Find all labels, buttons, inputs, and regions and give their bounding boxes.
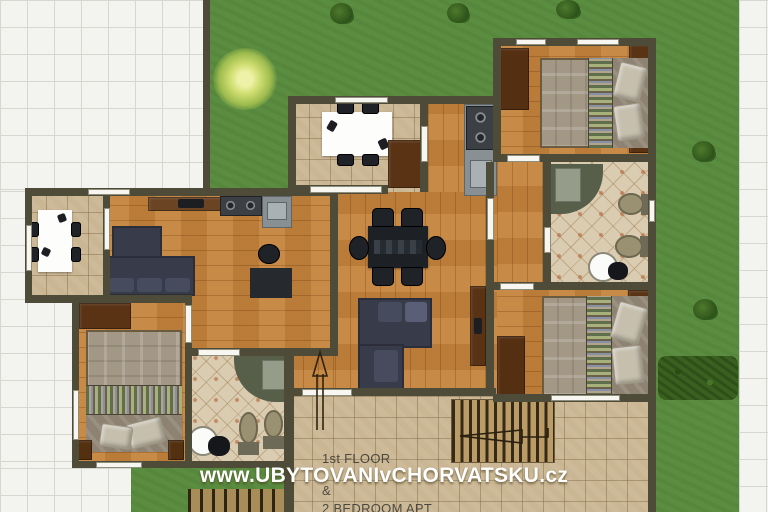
window xyxy=(577,39,619,45)
burner-icon xyxy=(224,199,237,212)
door-opening xyxy=(185,305,192,343)
bed-runner xyxy=(588,58,613,148)
wall xyxy=(543,162,551,290)
yellow-shrub xyxy=(213,48,277,110)
desk-chair xyxy=(258,244,280,264)
pillow xyxy=(613,102,646,142)
toilet xyxy=(615,235,643,258)
desk xyxy=(250,268,292,298)
sofa xyxy=(105,256,195,296)
door-opening xyxy=(421,126,428,162)
watermark: www.UBYTOVANIvCHORVATSKU.cz xyxy=(200,464,568,488)
dining-chair xyxy=(426,236,446,260)
patio-top-left xyxy=(0,0,206,191)
dining-chair xyxy=(71,247,81,262)
burner-icon xyxy=(244,199,257,212)
door-opening xyxy=(507,155,540,162)
entrance-door-opening xyxy=(302,389,352,396)
wall xyxy=(648,38,656,512)
sofa-chaise xyxy=(358,344,404,390)
patio-right-strip xyxy=(739,0,768,512)
stove xyxy=(466,106,496,150)
tv xyxy=(178,199,204,208)
window xyxy=(26,225,32,271)
sofa-cushion xyxy=(378,302,402,322)
wood-deck xyxy=(188,489,288,512)
wall xyxy=(493,38,501,162)
wall xyxy=(330,188,338,356)
window xyxy=(649,200,655,222)
floor-plan: 1st FLOOR & 2 BEDROOM APT www.UBYTOVANIv… xyxy=(0,0,768,512)
stove xyxy=(220,196,262,216)
shower-tray xyxy=(555,168,581,202)
stairs xyxy=(452,400,554,462)
terrace-chair xyxy=(362,154,379,166)
bush-icon xyxy=(692,141,715,162)
dining-chair xyxy=(349,236,369,260)
bath-stool xyxy=(608,262,628,280)
terrace-chair xyxy=(337,154,354,166)
sofa-cushion xyxy=(109,278,134,292)
wardrobe xyxy=(79,303,131,329)
window xyxy=(96,462,142,468)
bush-icon xyxy=(330,3,353,24)
bush-icon xyxy=(447,3,469,23)
sofa xyxy=(112,226,162,258)
kitchen-counter xyxy=(262,196,292,228)
toilet xyxy=(239,412,258,444)
bed xyxy=(542,296,648,396)
bed-runner xyxy=(586,296,612,396)
window xyxy=(73,390,79,440)
wall xyxy=(288,96,296,196)
toilet xyxy=(618,193,644,215)
window xyxy=(516,39,546,45)
wardrobe xyxy=(497,336,525,398)
hall-cabinet xyxy=(470,286,486,366)
table-runner xyxy=(374,240,422,254)
sofa-cushion xyxy=(137,278,162,292)
door-opening xyxy=(104,208,110,250)
pillow xyxy=(99,423,134,450)
bed xyxy=(86,330,182,452)
door-opening xyxy=(198,349,240,356)
pillow xyxy=(611,345,645,386)
floor-label-line3: 2 BEDROOM APT xyxy=(322,501,432,512)
dining-chair xyxy=(372,267,394,286)
dining-chair xyxy=(372,208,394,227)
door-opening xyxy=(544,227,551,253)
wall xyxy=(428,96,500,104)
burner-icon xyxy=(473,110,488,125)
bed-runner xyxy=(86,385,182,415)
burner-icon xyxy=(473,130,488,145)
window xyxy=(335,97,388,103)
dining-table xyxy=(38,210,72,272)
shower-tray xyxy=(262,360,286,390)
bath-stool xyxy=(208,436,230,456)
sofa-cushion xyxy=(374,350,398,382)
bidet xyxy=(264,410,283,438)
terrace-cabinet xyxy=(388,140,422,188)
window xyxy=(551,395,620,401)
bush-icon xyxy=(693,299,717,320)
dining-chair xyxy=(71,222,81,237)
door-opening xyxy=(487,198,494,240)
sofa-cushion xyxy=(405,302,427,322)
wall xyxy=(72,302,79,468)
corridor-floor xyxy=(497,162,549,290)
window xyxy=(88,189,130,195)
patio-bottom-left xyxy=(0,468,131,512)
window xyxy=(310,186,382,193)
door-opening xyxy=(500,283,534,290)
sink xyxy=(267,202,287,220)
garden-wall xyxy=(203,0,210,191)
dining-table-black xyxy=(368,226,428,268)
cabinet-handle xyxy=(474,318,482,334)
dining-chair xyxy=(401,267,423,286)
sofa-cushion xyxy=(165,278,190,292)
bed xyxy=(540,58,648,148)
sofa xyxy=(358,298,432,348)
hedge xyxy=(658,356,738,400)
dining-chair xyxy=(401,208,423,227)
wardrobe xyxy=(497,48,529,110)
bush-icon xyxy=(556,0,580,19)
bed-post xyxy=(168,440,184,460)
